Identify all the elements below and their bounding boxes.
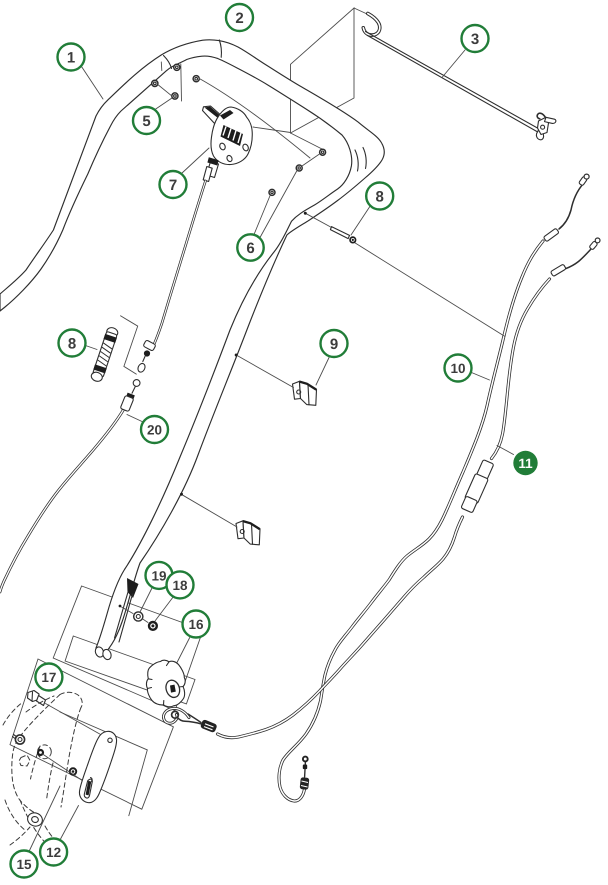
svg-text:5: 5	[142, 113, 150, 130]
svg-text:2: 2	[235, 10, 243, 27]
svg-text:9: 9	[330, 336, 338, 353]
svg-text:18: 18	[172, 578, 188, 593]
svg-text:8: 8	[68, 336, 76, 353]
svg-text:17: 17	[41, 670, 56, 685]
svg-text:7: 7	[169, 177, 177, 194]
svg-text:3: 3	[471, 31, 479, 48]
svg-text:6: 6	[246, 240, 254, 257]
svg-text:19: 19	[151, 568, 166, 583]
svg-text:8: 8	[376, 189, 384, 206]
svg-text:20: 20	[147, 422, 162, 437]
svg-text:16: 16	[188, 617, 204, 632]
svg-text:10: 10	[450, 361, 465, 376]
svg-text:12: 12	[46, 845, 61, 860]
svg-text:15: 15	[16, 857, 32, 872]
svg-text:1: 1	[67, 50, 75, 67]
svg-text:11: 11	[518, 456, 533, 471]
